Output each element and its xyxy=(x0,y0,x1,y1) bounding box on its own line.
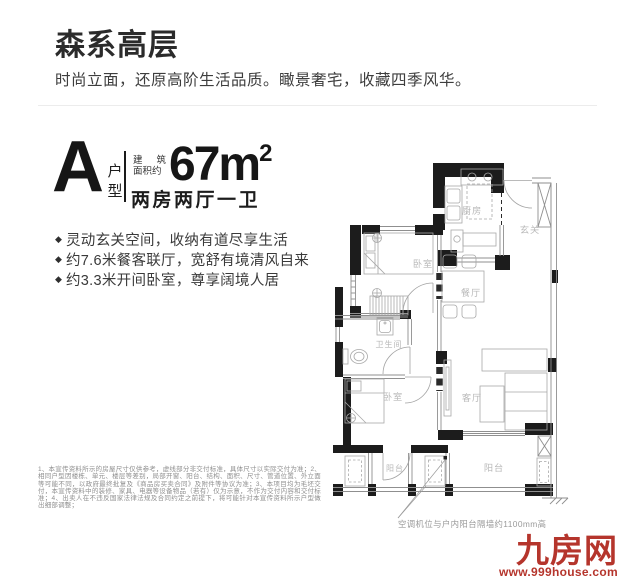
room-label-bathroom: 卫生间 xyxy=(376,339,403,349)
area-value: 67m2 xyxy=(169,130,272,191)
room-label-bedroom1: 卧室 xyxy=(413,258,433,269)
sofa-icon xyxy=(482,349,547,430)
room-label-living: 客厅 xyxy=(462,392,482,403)
legal-disclaimer: 1、本宣传资料所示的房屋尺寸仅供参考，虚线部分非交付标准，具体尺寸以实际交付为准… xyxy=(38,466,321,510)
unit-type-letter: A xyxy=(52,131,104,203)
diamond-bullet-icon: ◆ xyxy=(55,274,66,285)
sink-icon xyxy=(445,186,462,223)
coffee-table-icon xyxy=(480,386,504,422)
header-divider xyxy=(38,105,597,106)
page-title: 森系高层 xyxy=(55,20,179,64)
unit-vertical-divider xyxy=(124,151,126,202)
page-subtitle: 时尚立面，还原高阶生活品质。瞰景奢宅，收藏四季风华。 xyxy=(55,68,471,90)
ac-unit-icon xyxy=(345,456,551,486)
room-label-bedroom2: 卧室 xyxy=(383,391,403,402)
toilet-icon xyxy=(343,349,368,364)
unit-type-suffix: 户 型 xyxy=(107,162,123,202)
ac-note-text: 空调机位与户内阳台隔墙约1100mm高 xyxy=(398,519,546,529)
leader-anchor-dot xyxy=(444,456,448,460)
room-label-dining: 餐厅 xyxy=(461,287,481,298)
floorplan-svg: 厨房 玄关 卧室 餐厅 卫生间 卧室 客厅 阳台 阳台 空调机位与户内阳台隔墙约… xyxy=(320,130,625,570)
room-label-balcony-large: 阳台 xyxy=(484,462,504,473)
diamond-bullet-icon: ◆ xyxy=(55,234,66,245)
feature-item: ◆ 灵动玄关空间，收纳有道尽享生活 xyxy=(55,229,309,249)
room-label-entry: 玄关 xyxy=(520,224,540,235)
unit-layout-text: 两房两厅一卫 xyxy=(131,185,260,212)
feature-item: ◆ 约3.3米开间卧室，尊享阔境人居 xyxy=(55,269,309,289)
room-label-balcony-small: 阳台 xyxy=(386,463,404,473)
area-prefix-label: 建 筑 面积约 xyxy=(133,155,166,177)
area-superscript: 2 xyxy=(259,140,272,167)
diamond-bullet-icon: ◆ xyxy=(55,254,66,265)
brand-url: www.999house.com xyxy=(499,566,618,579)
flyer-page: 森系高层 时尚立面，还原高阶生活品质。瞰景奢宅，收藏四季风华。 A 户 型 建 … xyxy=(0,0,625,582)
tv-cabinet-icon xyxy=(444,360,451,416)
feature-item: ◆ 约7.6米餐客联厅，宽舒有境清风自来 xyxy=(55,249,309,269)
feature-list: ◆ 灵动玄关空间，收纳有道尽享生活 ◆ 约7.6米餐客联厅，宽舒有境清风自来 ◆… xyxy=(55,229,309,289)
room-label-kitchen: 厨房 xyxy=(462,205,482,216)
kitchen-counter xyxy=(463,233,496,246)
washer-icon xyxy=(451,230,463,252)
floorplan-walls xyxy=(333,163,558,496)
washbasin-icon xyxy=(377,318,393,335)
brand-block: 九房网 www.999house.com xyxy=(499,535,618,579)
brand-logo: 九房网 xyxy=(499,535,618,566)
